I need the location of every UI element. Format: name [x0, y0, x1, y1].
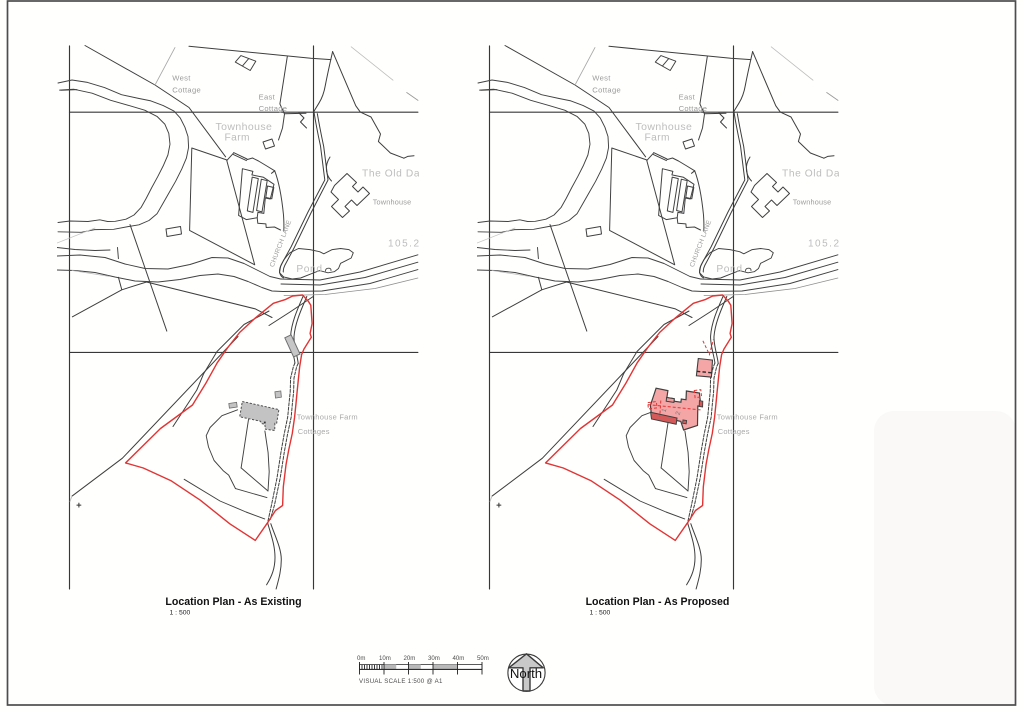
svg-text:VISUAL SCALE 1:500 @ A1: VISUAL SCALE 1:500 @ A1 — [359, 678, 443, 685]
svg-text:30m: 30m — [428, 655, 440, 662]
svg-text:1 : 500: 1 : 500 — [590, 610, 611, 617]
svg-text:Location Plan - As Existing: Location Plan - As Existing — [165, 596, 301, 608]
svg-text:20m: 20m — [404, 655, 416, 662]
svg-text:Location Plan - As Proposed: Location Plan - As Proposed — [586, 596, 730, 608]
svg-text:1 : 500: 1 : 500 — [170, 610, 191, 617]
svg-text:50m: 50m — [477, 655, 489, 662]
svg-text:40m: 40m — [453, 655, 465, 662]
svg-text:10m: 10m — [379, 655, 391, 662]
svg-text:0m: 0m — [357, 655, 365, 662]
svg-text:North: North — [510, 666, 542, 681]
